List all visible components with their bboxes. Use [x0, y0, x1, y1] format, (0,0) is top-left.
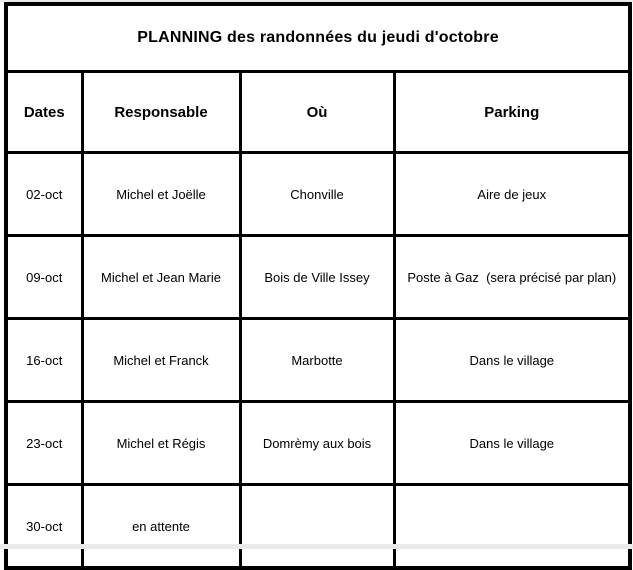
table-cell-parking — [394, 485, 630, 569]
table-title: PLANNING des randonnées du jeudi d'octob… — [6, 4, 630, 72]
planning-table-container: PLANNING des randonnées du jeudi d'octob… — [4, 2, 632, 570]
table-cell-responsable: Michel et Franck — [82, 319, 240, 402]
table-body: 02-oct Michel et Joëlle Chonville Aire d… — [6, 153, 630, 569]
header-row: Dates Responsable Où Parking — [6, 72, 630, 153]
table-row: 30-oct en attente — [6, 485, 630, 569]
table-cell-parking: Poste à Gaz (sera précisé par plan) — [394, 236, 630, 319]
column-header-responsable: Responsable — [82, 72, 240, 153]
table-cell-parking: Dans le village — [394, 402, 630, 485]
table-row: 09-oct Michel et Jean Marie Bois de Vill… — [6, 236, 630, 319]
table-cell-date: 23-oct — [6, 402, 82, 485]
table-cell-date: 30-oct — [6, 485, 82, 569]
column-header-ou: Où — [240, 72, 394, 153]
table-cell-responsable: en attente — [82, 485, 240, 569]
table-cell-responsable: Michel et Régis — [82, 402, 240, 485]
table-cell-parking: Dans le village — [394, 319, 630, 402]
column-header-dates: Dates — [6, 72, 82, 153]
table-cell-ou: Bois de Ville Issey — [240, 236, 394, 319]
table-cell-ou: Chonville — [240, 153, 394, 236]
table-cell-ou: Marbotte — [240, 319, 394, 402]
table-cell-date: 02-oct — [6, 153, 82, 236]
table-cell-parking: Aire de jeux — [394, 153, 630, 236]
column-header-parking: Parking — [394, 72, 630, 153]
title-row: PLANNING des randonnées du jeudi d'octob… — [6, 4, 630, 72]
page: { "title": "PLANNING des randonnées du j… — [0, 0, 633, 549]
table-row: 23-oct Michel et Régis Domrèmy aux bois … — [6, 402, 630, 485]
table-row: 02-oct Michel et Joëlle Chonville Aire d… — [6, 153, 630, 236]
table-cell-date: 16-oct — [6, 319, 82, 402]
planning-table: PLANNING des randonnées du jeudi d'octob… — [4, 2, 632, 570]
table-cell-responsable: Michel et Jean Marie — [82, 236, 240, 319]
table-row: 16-oct Michel et Franck Marbotte Dans le… — [6, 319, 630, 402]
table-head: PLANNING des randonnées du jeudi d'octob… — [6, 4, 630, 153]
table-cell-ou: Domrèmy aux bois — [240, 402, 394, 485]
table-cell-ou — [240, 485, 394, 569]
screenshot-edge-bottom — [0, 544, 633, 549]
table-cell-responsable: Michel et Joëlle — [82, 153, 240, 236]
table-cell-date: 09-oct — [6, 236, 82, 319]
